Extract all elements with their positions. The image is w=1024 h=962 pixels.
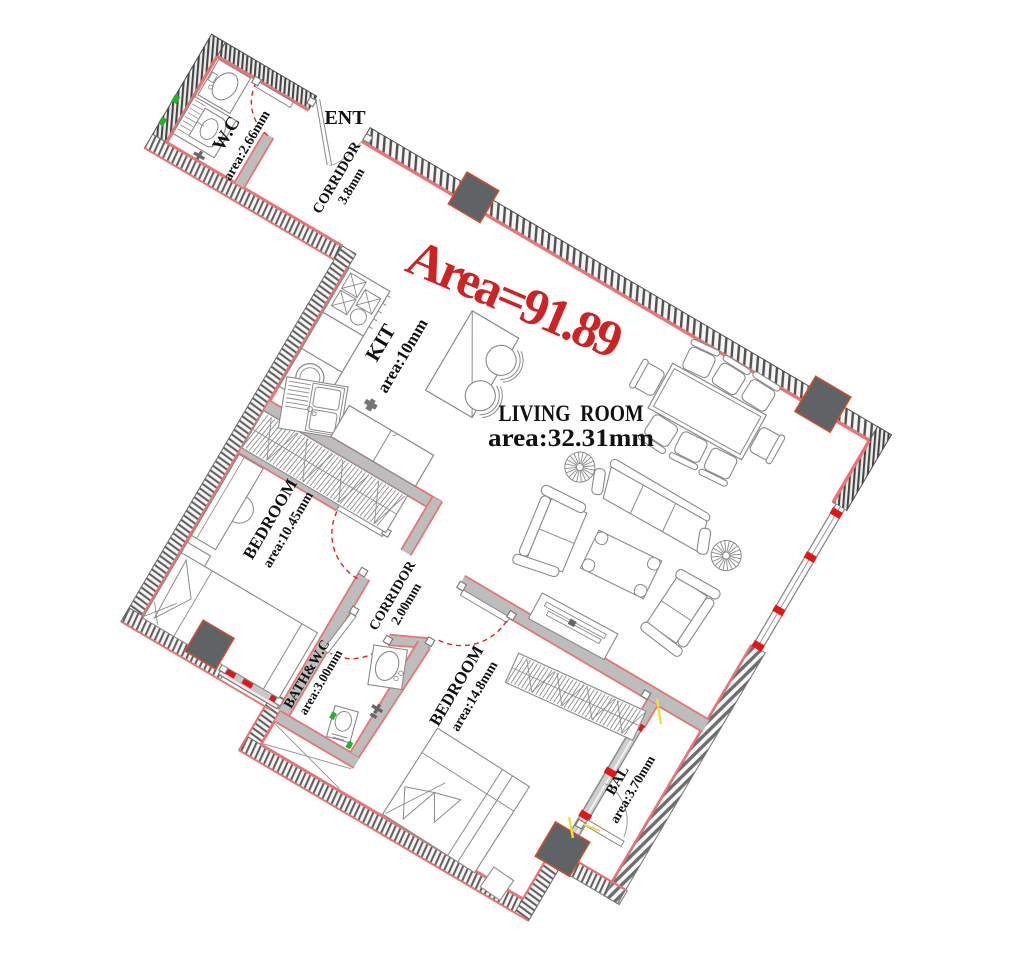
svg-text:ENT: ENT <box>324 107 366 129</box>
svg-text:area:32.31mm: area:32.31mm <box>488 425 654 452</box>
svg-text:LIVING ROOM: LIVING ROOM <box>499 401 644 426</box>
